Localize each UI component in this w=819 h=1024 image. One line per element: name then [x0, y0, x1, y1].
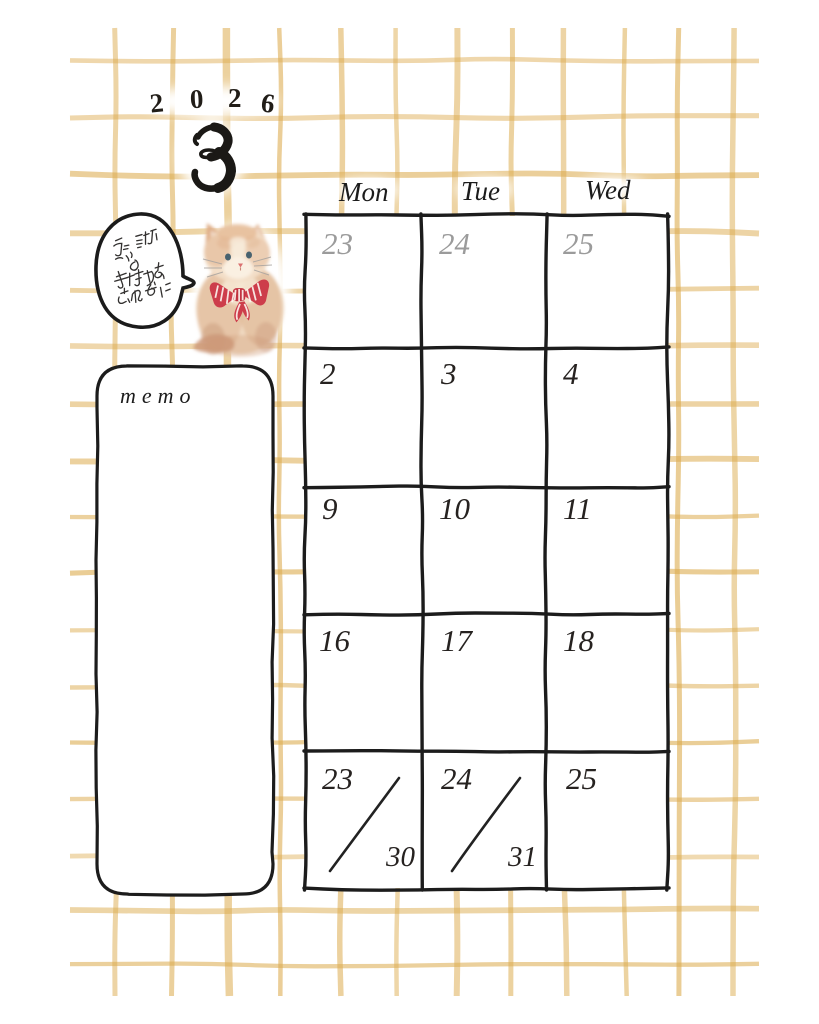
svg-text:Mon: Mon — [338, 177, 389, 207]
svg-text:Wed: Wed — [585, 175, 631, 205]
svg-text:24: 24 — [439, 226, 470, 261]
svg-text:2: 2 — [228, 83, 242, 113]
svg-text:25: 25 — [563, 226, 594, 261]
svg-text:23: 23 — [322, 761, 353, 796]
svg-text:25: 25 — [566, 761, 597, 796]
svg-text:Tue: Tue — [461, 176, 500, 206]
svg-text:2: 2 — [320, 356, 336, 391]
svg-text:18: 18 — [563, 623, 595, 658]
svg-text:memo: memo — [120, 383, 197, 408]
svg-text:17: 17 — [441, 623, 474, 658]
svg-text:11: 11 — [563, 491, 592, 526]
svg-text:30: 30 — [385, 841, 416, 873]
svg-text:4: 4 — [563, 356, 579, 391]
svg-text:16: 16 — [319, 623, 351, 658]
svg-text:9: 9 — [322, 491, 338, 526]
svg-text:10: 10 — [439, 491, 471, 526]
svg-text:0: 0 — [189, 84, 204, 115]
svg-text:24: 24 — [441, 761, 472, 796]
svg-text:23: 23 — [322, 226, 353, 261]
svg-text:3: 3 — [440, 356, 457, 391]
svg-text:6: 6 — [259, 87, 277, 119]
svg-text:31: 31 — [507, 841, 537, 873]
